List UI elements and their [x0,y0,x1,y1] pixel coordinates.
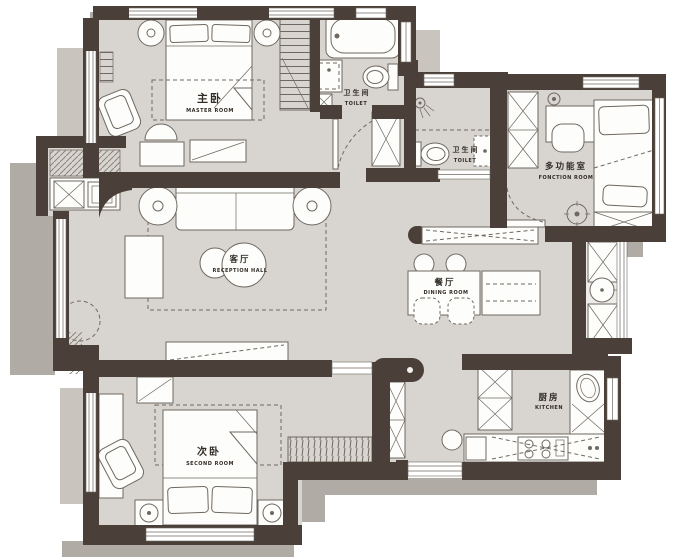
window-icon [128,8,198,18]
label-bath-main-en: TOILET [345,101,368,107]
label-dining-zh: 餐厅 [433,277,455,288]
side-table-icon [139,187,177,225]
window-icon [356,8,386,18]
label-dining-en: DINING ROOM [424,290,469,296]
label-second-en: SECOND ROOM [186,461,234,467]
label-function-en: FONCTION ROOM [539,175,594,181]
sliding-door-icon [332,362,372,374]
nightstand-icon [138,20,164,46]
window-icon [655,98,664,214]
label-kitchen-zh: 厨房 [538,392,559,403]
label-master-zh: 主卧 [197,91,223,105]
floor-plan-drawing: 主卧 MASTER ROOM 卫生间 TOILET 卫生间 TOILET 多功能… [0,0,676,557]
dresser-icon [140,142,184,166]
label-function-zh: 多功能室 [545,161,587,172]
window-icon [86,50,96,144]
nightstand-icon [135,500,163,526]
chair-icon [448,298,474,324]
console-icon [422,227,538,244]
small-cabinet-icon [466,437,486,460]
label-bath-guest-en: TOILET [454,158,477,164]
window-icon [56,218,66,340]
door-leaf-icon [333,119,338,169]
window-icon [424,74,454,86]
label-master-en: MASTER ROOM [186,108,234,114]
sideboard-icon [482,271,540,315]
side-table-icon [293,187,331,225]
toilet-icon [412,142,449,166]
coffee-table-icon [222,243,266,287]
toilet-icon [363,64,398,90]
label-bath-main-zh: 卫生间 [344,88,371,97]
window-icon [268,8,334,18]
dining-room [408,226,540,324]
nightstand-icon [254,20,280,46]
entry-door-threshold [408,462,462,476]
window-icon [146,528,254,541]
label-bath-guest-zh: 卫生间 [453,145,480,154]
chair-icon [414,298,440,324]
window-icon [401,22,411,62]
east-balcony [588,240,627,346]
side-shelf-icon [100,52,113,82]
label-living-zh: 客厅 [228,254,250,265]
sliding-door-icon [438,170,490,179]
floor-plan-canvas: 主卧 MASTER ROOM 卫生间 TOILET 卫生间 TOILET 多功能… [0,0,676,557]
label-kitchen-en: KITCHEN [535,405,563,411]
window-icon [86,392,96,492]
label-second-zh: 次卧 [197,445,221,458]
desk-chair-icon [552,124,584,152]
cabinet-icon [125,236,163,298]
balcony-glazing [617,240,627,346]
double-bed-icon [163,410,257,525]
stool-icon [442,430,462,450]
nightstand-icon [258,500,286,526]
double-bed-icon [166,20,252,120]
label-living-en: RECEPTION HALL [213,268,268,274]
window-icon [607,378,618,420]
door-leaf-icon [505,220,545,227]
bookshelf-icon [288,437,372,462]
window-icon [583,77,639,88]
